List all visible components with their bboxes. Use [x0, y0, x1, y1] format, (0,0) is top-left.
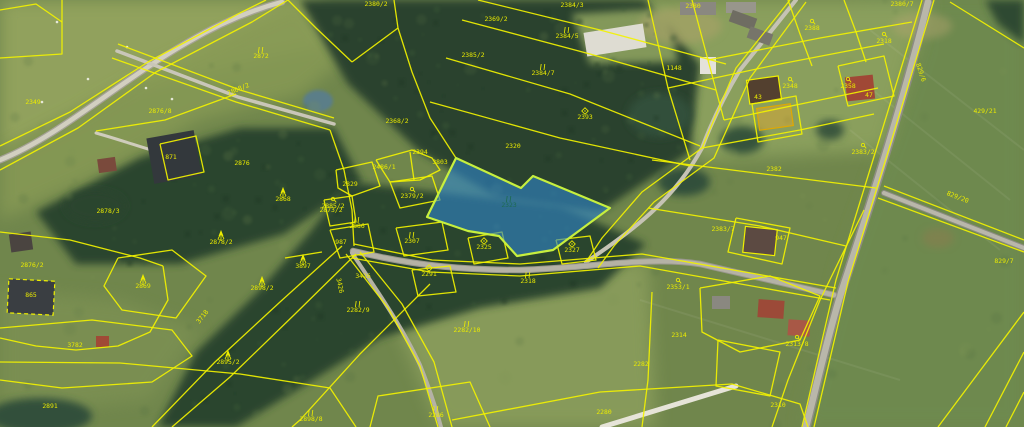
tree-canopy-speckle: [297, 142, 301, 146]
tree-canopy-speckle: [654, 116, 659, 121]
tree-canopy-speckle: [283, 325, 287, 329]
parcel-number-text: 2348: [782, 82, 798, 90]
parcel-number-text: 2325: [476, 243, 492, 251]
terrain-mottle: [601, 125, 609, 133]
tree-canopy-speckle: [463, 0, 465, 2]
parcel-number-text: 2314: [671, 331, 687, 339]
terrain-mottle: [275, 180, 281, 186]
terrain-mottle: [23, 56, 33, 66]
parcel-number-text: 2876: [234, 159, 250, 167]
parcel-number-text: 2383/7: [711, 225, 734, 233]
building: [96, 336, 109, 347]
terrain-mottle: [344, 18, 355, 29]
terrain-mottle: [311, 316, 316, 321]
terrain-mottle: [112, 226, 116, 230]
terrain-mottle: [637, 132, 646, 141]
terrain-mottle: [265, 164, 270, 169]
diamond-symbol-dot: [584, 110, 585, 111]
terrain-mottle: [65, 193, 73, 201]
parcel-number-text: 2891: [42, 402, 58, 410]
terrain-mottle: [186, 324, 192, 330]
tree-canopy-speckle: [584, 82, 590, 88]
tree-canopy-speckle: [393, 96, 397, 100]
terrain-mottle: [18, 194, 28, 204]
parcel-number-text: 2380: [685, 2, 701, 10]
parcel-label-2876: 2876: [234, 159, 250, 167]
tree-canopy-speckle: [568, 18, 572, 22]
tree-canopy-speckle: [428, 81, 430, 83]
terrain-mottle: [314, 169, 326, 181]
tree-canopy-speckle: [457, 84, 459, 86]
parcel-label-2382: 2382: [766, 165, 782, 173]
terrain-mottle: [382, 80, 388, 86]
tree-canopy-speckle: [610, 66, 614, 70]
parcel-label-2891: 2891: [42, 402, 58, 410]
building: [726, 2, 756, 13]
diamond-symbol-dot: [571, 243, 572, 244]
parcel-number-text: 3426: [355, 272, 371, 280]
tree-canopy-speckle: [570, 280, 577, 287]
tree-canopy-speckle: [203, 158, 206, 161]
parcel-number-text: 2282/9: [346, 306, 369, 314]
parcel-number-text: 2349: [25, 98, 41, 106]
tree-canopy-speckle: [616, 64, 623, 71]
tree-canopy-speckle: [597, 72, 601, 76]
tree-canopy-speckle: [142, 200, 146, 204]
tree-canopy-speckle: [600, 159, 603, 162]
terrain-mottle: [808, 366, 813, 371]
building: [743, 226, 778, 255]
parcel-label-2320: 2320: [505, 142, 521, 150]
terrain-mottle: [827, 369, 837, 379]
parcel-number-text: 2384/3: [560, 1, 583, 9]
parcel-number-text: 2323: [501, 201, 517, 209]
parcel-number-text: 2313/8: [785, 340, 808, 348]
parcel-number-text: 2358: [840, 82, 856, 90]
terrain-mottle: [222, 207, 236, 221]
tree-canopy-speckle: [390, 248, 393, 251]
tree-canopy-speckle: [340, 332, 342, 334]
parcel-label-2282: 2282: [633, 360, 649, 368]
tree-canopy-speckle: [568, 127, 574, 133]
terrain-mottle: [902, 236, 907, 241]
terrain-mottle: [499, 371, 512, 384]
tree-canopy-speckle: [431, 131, 437, 137]
tree-canopy-speckle: [234, 392, 236, 394]
tree-canopy-speckle: [234, 404, 241, 411]
parcel-number-text: 3803: [432, 158, 448, 166]
livestock-dot: [145, 87, 148, 90]
tree-canopy-speckle: [395, 36, 399, 40]
terrain-mottle: [243, 215, 252, 224]
tree-canopy-speckle: [214, 214, 220, 220]
tree-canopy-speckle: [208, 186, 215, 193]
terrain-mottle: [316, 70, 322, 76]
parcel-label-2368/2: 2368/2: [385, 117, 408, 125]
parcel-label-43: 43: [754, 93, 762, 101]
terrain-mottle: [209, 63, 214, 68]
parcel-label-2349: 2349: [25, 98, 41, 106]
tree-canopy-speckle: [328, 32, 334, 38]
parcel-label-2384/3: 2384/3: [560, 1, 583, 9]
tree-canopy-speckle: [227, 381, 232, 386]
tree-canopy-speckle: [562, 110, 568, 116]
parcel-number-text: 2486/1: [372, 163, 395, 171]
tree-canopy-speckle: [544, 10, 549, 15]
parcel-number-text: 2327: [564, 246, 580, 254]
parcel-number-text: 3782: [67, 341, 83, 349]
tree-canopy-speckle: [112, 237, 115, 240]
parcel-number-text: 2383/2: [851, 148, 874, 156]
tree-canopy-speckle: [644, 23, 648, 27]
tree-canopy-speckle: [556, 152, 562, 158]
parcel-number-text: 2380/2: [364, 0, 387, 8]
parcel-label-865: 865: [25, 291, 37, 299]
parcel-number-text: 2310: [770, 401, 786, 409]
tree-canopy-speckle: [393, 19, 396, 22]
parcel-number-text: 2382: [766, 165, 782, 173]
tree-canopy-speckle: [482, 88, 484, 90]
parcel-number-text: 2384/5: [555, 32, 578, 40]
terrain-mottle: [653, 92, 660, 99]
parcel-number-text: 2318: [520, 277, 536, 285]
parcel-number-text: 47: [865, 91, 873, 99]
tree-canopy-speckle: [436, 64, 440, 68]
livestock-dot: [41, 101, 44, 104]
parcel-number-text: 2280: [596, 408, 612, 416]
parcel-number-text: 2868: [275, 195, 291, 203]
tree-canopy-speckle: [607, 54, 609, 56]
terrain-mottle: [366, 51, 380, 65]
parcel-number-text: 2885/2: [321, 202, 344, 210]
terrain-mottle: [823, 217, 828, 222]
terrain-mottle: [207, 297, 212, 302]
parcel-number-text: 2869: [135, 282, 151, 290]
terrain-mottle: [882, 268, 888, 274]
field-patch: [65, 190, 125, 222]
parcel-label-2385/2: 2385/2: [461, 51, 484, 59]
parcel-number-text: 2380/7: [890, 0, 913, 8]
field-patch: [922, 228, 954, 248]
parcel-number-text: 2291: [421, 270, 437, 278]
parcel-label-829/7: 829/7: [994, 257, 1013, 265]
tree-canopy-speckle: [443, 95, 446, 98]
parcel-number-text: 829/7: [994, 257, 1013, 265]
terrain-mottle: [806, 203, 812, 209]
parcel-number-text: 987: [335, 238, 347, 246]
tree-canopy-speckle: [358, 38, 362, 42]
tree-canopy-speckle: [434, 6, 440, 12]
tree-canopy-speckle: [272, 204, 278, 210]
parcel-label-429/21: 429/21: [973, 107, 996, 115]
tree-canopy-speckle: [316, 339, 318, 341]
parcel-number-text: 2876/8: [148, 107, 171, 115]
parcel-number-text: 2898/8: [299, 415, 322, 423]
parcel-number-text: 43: [754, 93, 762, 101]
tree-canopy-speckle: [127, 261, 133, 267]
terrain-mottle: [727, 178, 733, 184]
terrain-mottle: [369, 332, 374, 337]
terrain-mottle: [539, 32, 548, 41]
tree-canopy-speckle: [422, 33, 425, 36]
tree-canopy-speckle: [442, 122, 449, 129]
parcel-number-text: 1148: [666, 64, 682, 72]
parcel-label-3782: 3782: [67, 341, 83, 349]
parcel-label-871: 871: [165, 153, 177, 161]
tree-canopy-speckle: [279, 219, 284, 224]
livestock-dot: [56, 21, 59, 24]
parcel-label-2829: 2829: [342, 180, 358, 188]
terrain-mottle: [515, 337, 524, 346]
tree-canopy-speckle: [255, 197, 261, 203]
terrain-mottle: [278, 239, 290, 251]
terrain-mottle: [65, 156, 76, 167]
tree-canopy-speckle: [640, 82, 643, 85]
terrain-mottle: [608, 294, 619, 305]
tree-canopy-speckle: [648, 62, 650, 64]
parcel-number-text: 2898/2: [250, 284, 273, 292]
tree-canopy-speckle: [342, 35, 348, 41]
terrain-mottle: [69, 185, 74, 190]
terrain-mottle: [200, 145, 211, 156]
terrain-mottle: [999, 68, 1007, 76]
parcel-number-text: 2379/2: [400, 192, 423, 200]
parcel-label-1148: 1148: [666, 64, 682, 72]
tree-canopy-speckle: [315, 302, 322, 309]
parcel-number-text: 865: [25, 291, 37, 299]
parcel-number-text: 2878/2: [209, 238, 232, 246]
tree-canopy-speckle: [677, 145, 682, 150]
building: [97, 157, 117, 173]
parcel-label-2876/8: 2876/8: [148, 107, 171, 115]
tree-canopy-speckle: [501, 298, 508, 305]
parcel-number-text: 871: [165, 153, 177, 161]
tree-canopy-speckle: [468, 144, 474, 150]
tree-canopy-speckle: [440, 109, 443, 112]
parcel-label-2369/2: 2369/2: [484, 15, 507, 23]
parcel-number-text: 429/21: [973, 107, 996, 115]
tree-canopy-speckle: [303, 208, 306, 211]
livestock-dot: [171, 98, 174, 101]
terrain-mottle: [278, 130, 287, 139]
terrain-mottle: [232, 63, 241, 72]
parcel-number-text: 2886: [349, 222, 365, 230]
parcel-number-text: 2876/2: [20, 261, 43, 269]
terrain-mottle: [603, 69, 607, 73]
parcel-label-2380/2: 2380/2: [364, 0, 387, 8]
tree-canopy-speckle: [449, 130, 455, 136]
terrain-mottle: [706, 180, 710, 184]
tree-canopy-speckle: [417, 111, 424, 118]
field-patch: [658, 168, 710, 196]
tree-canopy-speckle: [670, 35, 677, 42]
terrain-mottle: [991, 312, 1002, 323]
tree-canopy-speckle: [300, 375, 306, 381]
parcel-label-3803: 3803: [432, 158, 448, 166]
tree-canopy-speckle: [349, 348, 355, 354]
parcel-label-47: 47: [865, 91, 873, 99]
tree-canopy-speckle: [381, 205, 385, 209]
tree-canopy-speckle: [545, 156, 551, 162]
parcel-label-2486/1: 2486/1: [372, 163, 395, 171]
parcel-number-text: 2394: [412, 148, 428, 156]
building: [712, 296, 730, 309]
tree-canopy-speckle: [286, 308, 288, 310]
tree-canopy-speckle: [298, 156, 304, 162]
terrain-mottle: [69, 148, 76, 155]
tree-canopy-speckle: [471, 302, 476, 307]
parcel-number-text: 2318: [876, 37, 892, 45]
tree-canopy-speckle: [236, 138, 239, 141]
terrain-mottle: [637, 283, 641, 287]
parcel-number-text: 2368/2: [385, 117, 408, 125]
parcel-number-text: 2353/1: [666, 283, 689, 291]
terrain-mottle: [282, 383, 292, 393]
parcel-number-text: 2282/10: [454, 326, 481, 334]
tree-canopy-speckle: [427, 248, 431, 252]
parcel-number-text: 2895/2: [216, 358, 239, 366]
tree-canopy-speckle: [467, 152, 470, 155]
terrain-mottle: [959, 342, 973, 356]
tree-canopy-speckle: [193, 183, 196, 186]
terrain-mottle: [416, 14, 426, 24]
parcel-number-text: 2286: [428, 411, 444, 419]
terrain-mottle: [834, 88, 838, 92]
building: [757, 299, 784, 319]
terrain-mottle: [132, 239, 137, 244]
parcel-label-947: 947: [775, 234, 787, 242]
parcel-label-2380/7: 2380/7: [890, 0, 913, 8]
tree-canopy-speckle: [257, 341, 261, 345]
tree-canopy-speckle: [419, 72, 422, 75]
parcel-number-text: 2385/2: [461, 51, 484, 59]
parcel-label-2380: 2380: [685, 2, 701, 10]
terrain-mottle: [252, 409, 261, 418]
terrain-mottle: [72, 179, 78, 185]
tree-canopy-speckle: [629, 158, 634, 163]
tree-canopy-speckle: [185, 231, 190, 236]
terrain-mottle: [230, 147, 238, 155]
terrain-mottle: [921, 113, 929, 121]
parcel-label-987: 987: [335, 238, 347, 246]
tree-canopy-speckle: [211, 230, 216, 235]
parcel-label-2314: 2314: [671, 331, 687, 339]
tree-canopy-speckle: [142, 260, 147, 265]
tree-canopy-speckle: [638, 90, 645, 97]
tree-canopy-speckle: [433, 20, 438, 25]
tree-canopy-speckle: [592, 138, 596, 142]
terrain-mottle: [603, 186, 609, 192]
terrain-mottle: [987, 327, 991, 331]
terrain-mottle: [64, 323, 76, 335]
parcel-number-text: 2307: [404, 237, 420, 245]
parcel-number-text: 2878/3: [96, 207, 119, 215]
tree-canopy-speckle: [415, 90, 418, 93]
parcel-number-text: 2388: [804, 24, 820, 32]
tree-canopy-speckle: [526, 88, 531, 93]
building: [757, 104, 794, 131]
terrain-mottle: [74, 307, 84, 317]
parcel-label-2878/3: 2878/3: [96, 207, 119, 215]
tree-canopy-speckle: [199, 231, 202, 234]
tree-canopy-speckle: [328, 172, 334, 178]
terrain-mottle: [140, 406, 150, 416]
building: [787, 319, 810, 336]
parcel-number-text: 2384/7: [531, 69, 554, 77]
diamond-symbol-dot: [483, 240, 484, 241]
terrain-mottle: [725, 148, 739, 162]
terrain-mottle: [454, 250, 461, 257]
tree-canopy-speckle: [399, 79, 405, 85]
parcel-label-2280: 2280: [596, 408, 612, 416]
parcel-number-text: 2872: [253, 52, 269, 60]
parcel-number-text: 2282: [633, 360, 649, 368]
terrain-mottle: [345, 372, 356, 383]
parcel-number-text: 2369/2: [484, 15, 507, 23]
parcel-label-2383/7: 2383/7: [711, 225, 734, 233]
terrain-mottle: [711, 189, 718, 196]
parcel-label-3426: 3426: [355, 272, 371, 280]
tree-canopy-speckle: [409, 50, 415, 56]
tree-canopy-speckle: [281, 362, 286, 367]
diamond-symbol-dot: [428, 267, 429, 268]
tree-canopy-speckle: [621, 6, 626, 11]
tree-canopy-speckle: [595, 62, 600, 67]
tree-canopy-speckle: [427, 304, 432, 309]
parcel-number-text: 947: [775, 234, 787, 242]
terrain-mottle: [800, 193, 806, 199]
terrain-mottle: [10, 113, 20, 123]
map-canvas[interactable]: 234928722868/22876/8871287628682873/2287…: [0, 0, 1024, 427]
livestock-dot: [87, 78, 90, 81]
terrain-mottle: [332, 15, 343, 26]
tree-canopy-speckle: [553, 251, 556, 254]
terrain-mottle: [90, 275, 95, 280]
parcel-number-text: 2320: [505, 142, 521, 150]
tree-canopy-speckle: [317, 313, 324, 320]
terrain-mottle: [893, 9, 898, 14]
parcel-number-text: 3897: [295, 262, 311, 270]
parcel-number-text: 2393: [577, 113, 593, 121]
tree-canopy-speckle: [574, 82, 576, 84]
tree-canopy-speckle: [380, 228, 386, 234]
cadastral-map[interactable]: 234928722868/22876/8871287628682873/2287…: [0, 0, 1024, 427]
parcel-label-2310: 2310: [770, 401, 786, 409]
parcel-label-2876/2: 2876/2: [20, 261, 43, 269]
parcel-label-2394: 2394: [412, 148, 428, 156]
parcel-number-text: 2829: [342, 180, 358, 188]
tree-canopy-speckle: [222, 195, 229, 202]
terrain-mottle: [817, 138, 830, 151]
tree-canopy-speckle: [626, 174, 633, 181]
